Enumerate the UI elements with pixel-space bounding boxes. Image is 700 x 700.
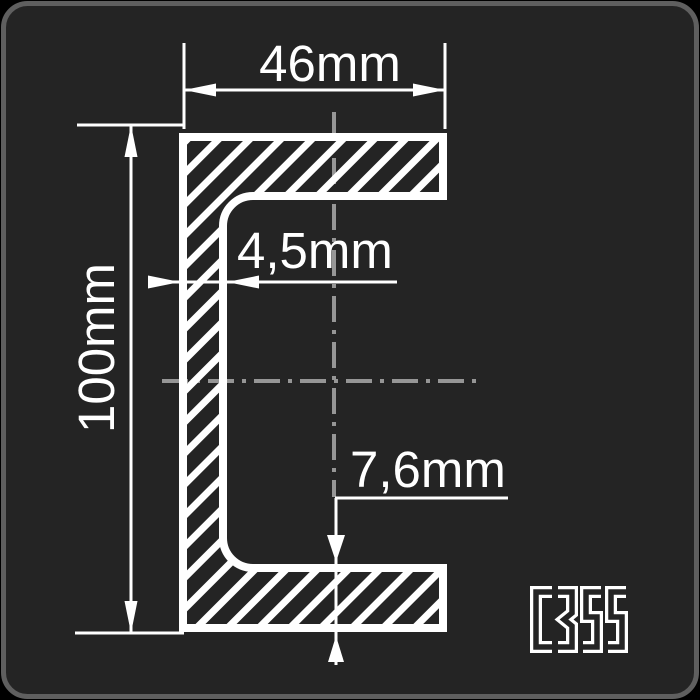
dim-profile-height-label: 100mm — [68, 263, 125, 433]
dim-flange-thickness-label: 7,6mm — [350, 441, 506, 498]
dim-web-thickness-label: 4,5mm — [237, 222, 393, 279]
channel-profile-drawing: 46mm 100mm 4,5mm 7,6mm — [0, 0, 700, 700]
dim-flange-width-label: 46mm — [259, 35, 401, 92]
